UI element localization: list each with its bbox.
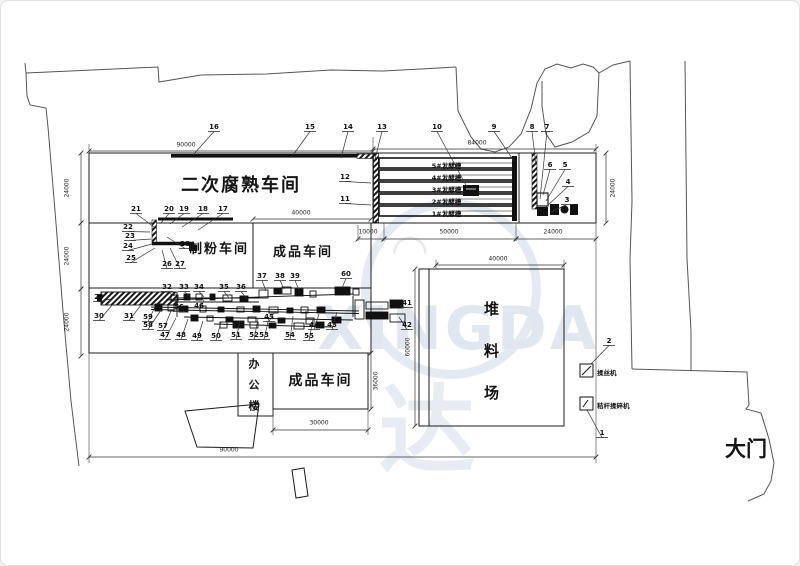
- callout-51: 51: [231, 331, 241, 339]
- dimension-24000-9: 24000: [64, 178, 71, 197]
- callout-42: 42: [402, 321, 412, 329]
- trough-label-3: 3#发酵槽: [380, 184, 513, 194]
- callout-34: 34: [194, 283, 204, 291]
- callout-53: 53: [259, 331, 269, 339]
- callout-12: 12: [340, 173, 350, 181]
- label-finished-workshop-main: 成品车间: [253, 246, 353, 259]
- dimension-24000-12: 24000: [610, 178, 617, 197]
- dimension-24000-5: 24000: [543, 229, 562, 236]
- label-main-gate: 大门: [725, 439, 767, 460]
- callout-3: 3: [565, 196, 570, 204]
- callout-1: 1: [600, 429, 605, 437]
- site-plan-page: ◠ XINGDA 达: [0, 0, 800, 566]
- trough-label-4: 4#发酵槽: [380, 172, 513, 182]
- callout-27: 27: [175, 260, 185, 268]
- label-stockyard: 堆料场: [483, 301, 498, 427]
- callout-20: 20: [164, 205, 174, 213]
- callout-36: 36: [236, 283, 246, 291]
- dimension-60000-13: 60000: [405, 337, 412, 356]
- callout-18: 18: [198, 205, 208, 213]
- dimension-24000-11: 24000: [64, 312, 71, 331]
- callout-8: 8: [530, 123, 535, 131]
- callout-4: 4: [566, 178, 571, 186]
- callout-32: 32: [162, 283, 172, 291]
- callout-22: 22: [123, 223, 133, 231]
- callout-10: 10: [432, 123, 442, 131]
- callout-33: 33: [179, 283, 189, 291]
- callout-23: 23: [125, 232, 135, 240]
- callout-16: 16: [209, 123, 219, 131]
- dimension-10000-3: 10000: [358, 229, 377, 236]
- callout-41: 41: [402, 299, 412, 307]
- callout-49: 49: [192, 332, 202, 340]
- callout-15: 15: [305, 123, 315, 131]
- callout-19: 19: [179, 205, 189, 213]
- legend-symbols: [580, 364, 593, 410]
- callout-45: 45: [264, 313, 274, 321]
- callout-26: 26: [162, 260, 172, 268]
- callout-44: 44: [309, 321, 319, 329]
- trough-label-2: 2#发酵槽: [380, 196, 513, 206]
- callout-24: 24: [123, 242, 133, 250]
- callout-39: 39: [290, 272, 300, 280]
- callout-7: 7: [545, 123, 550, 131]
- callout-54: 54: [285, 331, 295, 339]
- trough-label-5: 5#发酵槽: [380, 160, 513, 170]
- dimension-84000-1: 84000: [467, 140, 486, 147]
- callout-6: 6: [548, 161, 553, 169]
- callout-58: 58: [143, 321, 153, 329]
- dimension-90000-8: 90000: [219, 447, 238, 454]
- callout-21: 21: [131, 205, 141, 213]
- callout-56: 56: [174, 303, 184, 311]
- callout-37: 37: [257, 272, 267, 280]
- callout-30: 30: [94, 312, 104, 320]
- callout-17: 17: [218, 205, 228, 213]
- callout-13: 13: [377, 123, 387, 131]
- callout-57: 57: [158, 322, 168, 330]
- callout-9: 9: [492, 123, 497, 131]
- dimension-40000-2: 40000: [291, 210, 310, 217]
- callout-55: 55: [304, 332, 314, 340]
- dimension-90000-0: 90000: [176, 142, 195, 149]
- dimension-40000-6: 40000: [488, 256, 507, 263]
- callout-50: 50: [211, 332, 221, 340]
- callout-47: 47: [160, 331, 170, 339]
- callout-43: 43: [327, 321, 337, 329]
- label-finished-workshop-south: 成品车间: [273, 374, 368, 388]
- callout-28: 28: [180, 240, 190, 248]
- callout-25: 25: [126, 254, 136, 262]
- callout-29: 29: [94, 293, 104, 301]
- dimension-36000-14: 36000: [373, 371, 380, 390]
- callout-59: 59: [143, 313, 153, 321]
- callout-14: 14: [343, 123, 353, 131]
- callout-52: 52: [249, 331, 259, 339]
- legend-label-jiegan-roucuiji: 秸杆揉碎机: [597, 400, 630, 410]
- callout-46: 46: [194, 302, 204, 310]
- legend-label-rousiji: 揉丝机: [597, 367, 617, 377]
- callout-11: 11: [340, 195, 350, 203]
- callout-35: 35: [219, 283, 229, 291]
- label-office-building: 办公楼: [248, 358, 259, 421]
- callout-31: 31: [124, 312, 134, 320]
- callout-60: 60: [341, 270, 351, 278]
- callout-2: 2: [607, 337, 612, 345]
- site-plan-drawing: [1, 1, 799, 565]
- callout-48: 48: [176, 331, 186, 339]
- dimension-50000-4: 50000: [439, 229, 458, 236]
- dimension-24000-10: 24000: [64, 246, 71, 265]
- callout-5: 5: [563, 161, 568, 169]
- dimension-30000-7: 30000: [309, 420, 328, 427]
- site-boundary: [25, 61, 774, 501]
- callout-38: 38: [275, 272, 285, 280]
- trough-label-1: 1#发酵槽: [380, 208, 513, 218]
